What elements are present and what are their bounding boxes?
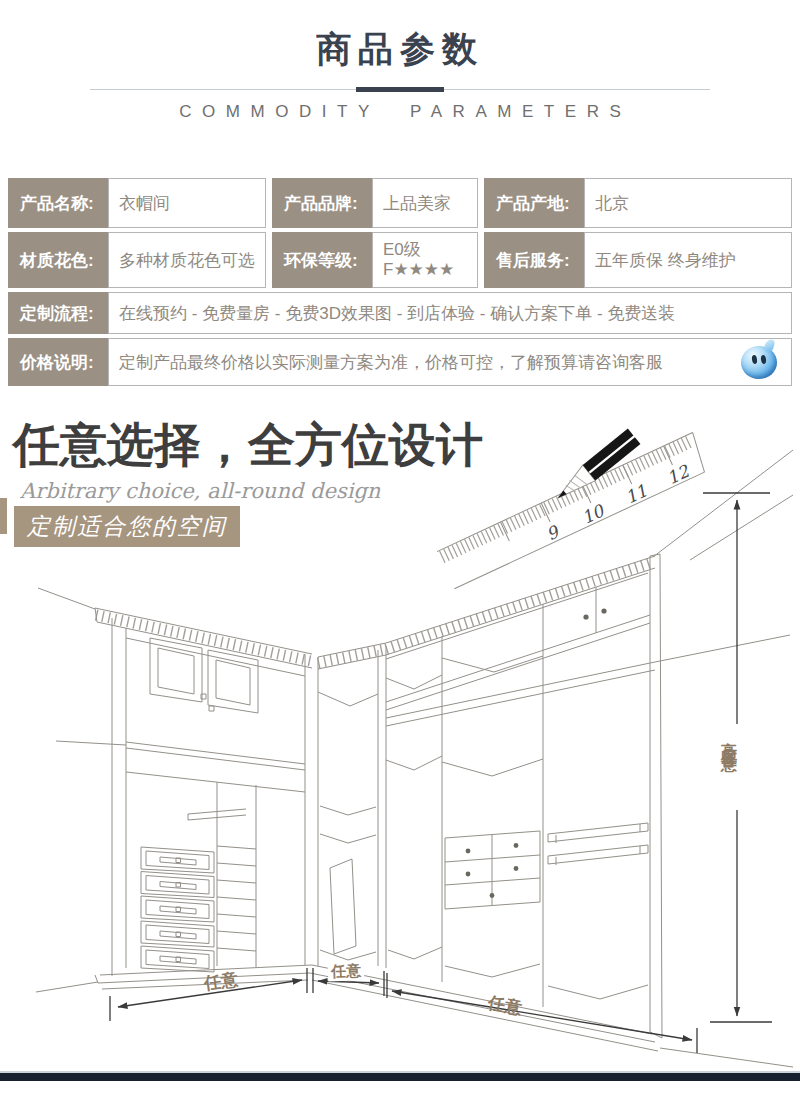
value-custom-process: 在线预约 - 免费量房 - 免费3D效果图 - 到店体验 - 确认方案下单 - … bbox=[108, 292, 792, 334]
design-heading: 任意选择，全方位设计 bbox=[13, 414, 483, 477]
dimension-label-width-middle: 任意 bbox=[328, 961, 365, 981]
header-divider-accent bbox=[356, 87, 444, 92]
spec-pair-after-sale: 售后服务: 五年质保 终身维护 bbox=[484, 232, 792, 288]
spec-pair-origin: 产品产地: 北京 bbox=[484, 178, 792, 228]
qq-eye-right bbox=[760, 354, 766, 364]
page-subtitle: COMMODITY PARAMETERS bbox=[0, 102, 800, 122]
value-material: 多种材质花色可选 bbox=[108, 232, 266, 288]
spec-pair-brand: 产品品牌: 上品美家 bbox=[272, 178, 478, 228]
product-parameters-page: { "header": { "title": "商品参数", "subtitle… bbox=[0, 0, 800, 1094]
value-price-note: 定制产品最终价格以实际测量方案为准，价格可控，了解预算请咨询客服 bbox=[108, 338, 792, 386]
spec-pair-material: 材质花色: 多种材质花色可选 bbox=[8, 232, 266, 288]
label-origin: 产品产地: bbox=[484, 178, 584, 228]
design-tagline: 定制适合您的空间 bbox=[14, 506, 240, 547]
dimension-label-width-left: 任意 bbox=[203, 968, 240, 996]
value-brand: 上品美家 bbox=[372, 178, 478, 228]
label-product-name: 产品名称: bbox=[8, 178, 108, 228]
price-note-text: 定制产品最终价格以实际测量方案为准，价格可控，了解预算请咨询客服 bbox=[119, 351, 733, 374]
design-subheading: Arbitrary choice, all-round design bbox=[20, 479, 380, 503]
tagline-edge-strip bbox=[0, 498, 7, 534]
label-price-note: 价格说明: bbox=[8, 338, 108, 386]
value-product-name: 衣帽间 bbox=[108, 178, 266, 228]
header-divider bbox=[90, 89, 710, 90]
dimension-label-height: 高度任意 bbox=[718, 724, 739, 752]
label-after-sale: 售后服务: bbox=[484, 232, 584, 288]
spec-pair-product-name: 产品名称: 衣帽间 bbox=[8, 178, 266, 228]
value-eco-grade: E0级 F★★★★ bbox=[372, 232, 478, 288]
spec-row-4: 价格说明: 定制产品最终价格以实际测量方案为准，价格可控，了解预算请咨询客服 bbox=[8, 338, 792, 386]
label-custom-process: 定制流程: bbox=[8, 292, 108, 334]
spec-pair-price: 价格说明: 定制产品最终价格以实际测量方案为准，价格可控，了解预算请咨询客服 bbox=[8, 338, 792, 386]
spec-row-2: 材质花色: 多种材质花色可选 环保等级: E0级 F★★★★ 售后服务: 五年质… bbox=[8, 232, 792, 288]
spec-table: 产品名称: 衣帽间 产品品牌: 上品美家 产品产地: 北京 材质花色: 多种材质… bbox=[8, 178, 792, 390]
label-eco-grade: 环保等级: bbox=[272, 232, 372, 288]
qq-tail bbox=[763, 337, 776, 352]
label-brand: 产品品牌: bbox=[272, 178, 372, 228]
spec-row-3: 定制流程: 在线预约 - 免费量房 - 免费3D效果图 - 到店体验 - 确认方… bbox=[8, 292, 792, 334]
page-header: 商品参数 COMMODITY PARAMETERS bbox=[0, 26, 800, 122]
qq-eye-left bbox=[751, 354, 757, 364]
label-material: 材质花色: bbox=[8, 232, 108, 288]
value-origin: 北京 bbox=[584, 178, 792, 228]
page-title: 商品参数 bbox=[0, 26, 800, 73]
spec-row-1: 产品名称: 衣帽间 产品品牌: 上品美家 产品产地: 北京 bbox=[8, 178, 792, 228]
value-after-sale: 五年质保 终身维护 bbox=[584, 232, 792, 288]
spec-pair-eco-grade: 环保等级: E0级 F★★★★ bbox=[272, 232, 478, 288]
spec-pair-process: 定制流程: 在线预约 - 免费量房 - 免费3D效果图 - 到店体验 - 确认方… bbox=[8, 292, 792, 334]
qq-customer-service-icon[interactable] bbox=[741, 346, 777, 379]
drawer-stack bbox=[141, 847, 214, 972]
